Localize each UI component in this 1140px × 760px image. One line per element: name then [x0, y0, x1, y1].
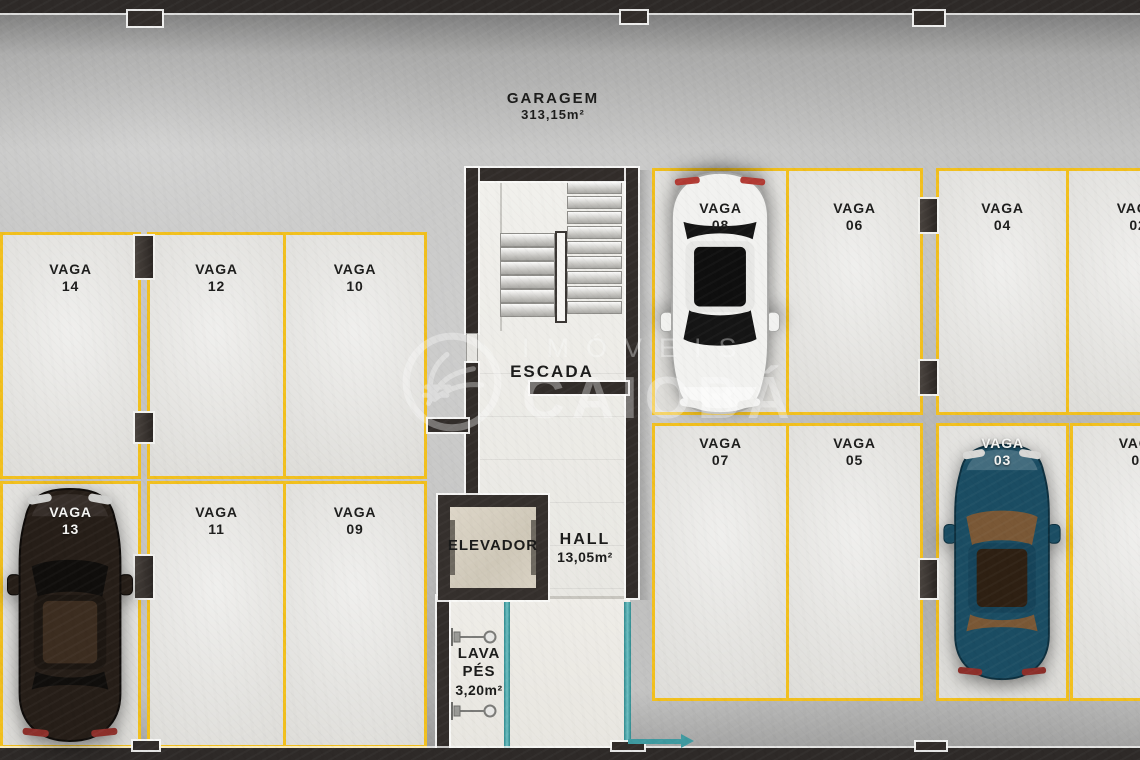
stair-handrail: [555, 231, 567, 323]
hall-wall-middle: [530, 382, 628, 394]
parking-spot-vaga-07: VAGA07: [652, 423, 789, 701]
parking-spot-vaga-02: VAGA02: [1066, 168, 1140, 415]
pillar: [920, 361, 937, 394]
stairwell-door: [466, 333, 478, 363]
spot-label: VAGA03: [939, 435, 1066, 469]
stairwell-wall-top: [466, 168, 638, 181]
spot-label: VAGA13: [3, 504, 138, 538]
stairs-label: ESCADA: [478, 362, 626, 382]
parking-spot-vaga-12: VAGA12: [147, 232, 286, 479]
parking-spot-vaga-09: VAGA09: [283, 481, 427, 748]
parking-spot-vaga-05: VAGA05: [786, 423, 923, 701]
pillar: [920, 199, 937, 232]
hall-label: HALL 13,05m²: [535, 531, 635, 565]
parking-spot-vaga-01: VAGA01: [1070, 423, 1140, 701]
stairwell-shadow: [638, 170, 652, 600]
pillar: [135, 413, 153, 442]
perimeter-wall-top: [0, 0, 1140, 13]
stair-landing: [478, 181, 502, 331]
spot-label: VAGA11: [150, 504, 283, 538]
parking-spot-vaga-10: VAGA10: [283, 232, 427, 479]
spot-label: VAGA08: [655, 200, 786, 234]
spot-label: VAGA07: [655, 435, 786, 469]
entrance-arrow-head: [681, 734, 694, 748]
pillar: [920, 560, 937, 598]
wall-notch: [128, 11, 162, 26]
wall-stub-left: [428, 419, 468, 432]
parking-spot-vaga-06: VAGA06: [786, 168, 923, 415]
spot-label: VAGA01: [1073, 435, 1140, 469]
glass-partition: [624, 602, 631, 748]
garage-title-name: GARAGEM: [453, 90, 653, 107]
footwash-label: LAVA PÉS 3,20m²: [434, 645, 524, 699]
wall-notch: [621, 11, 647, 23]
garage-title: GARAGEM 313,15m²: [453, 90, 653, 122]
spot-label: VAGA06: [789, 200, 920, 234]
perimeter-wall-bottom: [0, 748, 1140, 760]
wall-notch: [916, 742, 946, 750]
parking-spot-vaga-14: VAGA14: [0, 232, 141, 479]
entrance-arrow: [628, 739, 682, 744]
parking-spot-vaga-11: VAGA11: [147, 481, 286, 748]
spot-label: VAGA10: [286, 261, 424, 295]
footwash-hall-divider: [548, 596, 626, 599]
garage-title-area: 313,15m²: [453, 107, 653, 122]
stairwell-wall-left: [466, 168, 478, 333]
spot-label: VAGA09: [286, 504, 424, 538]
wall-notch: [133, 741, 159, 750]
spot-label: VAGA14: [3, 261, 138, 295]
parking-spot-vaga-04: VAGA04: [936, 168, 1069, 415]
pillar: [135, 556, 153, 598]
spot-label: VAGA05: [789, 435, 920, 469]
spot-label: VAGA04: [939, 200, 1066, 234]
spot-label: VAGA02: [1069, 200, 1140, 234]
spot-label: VAGA12: [150, 261, 283, 295]
foot-wash-tap-icon: [450, 698, 500, 724]
garage-floor-plan: GARAGEM 313,15m² VAGA14 VAGA12 VAGA10 VA…: [0, 0, 1140, 760]
wall-notch: [914, 11, 944, 25]
elevator-label: ELEVADOR: [438, 537, 548, 554]
